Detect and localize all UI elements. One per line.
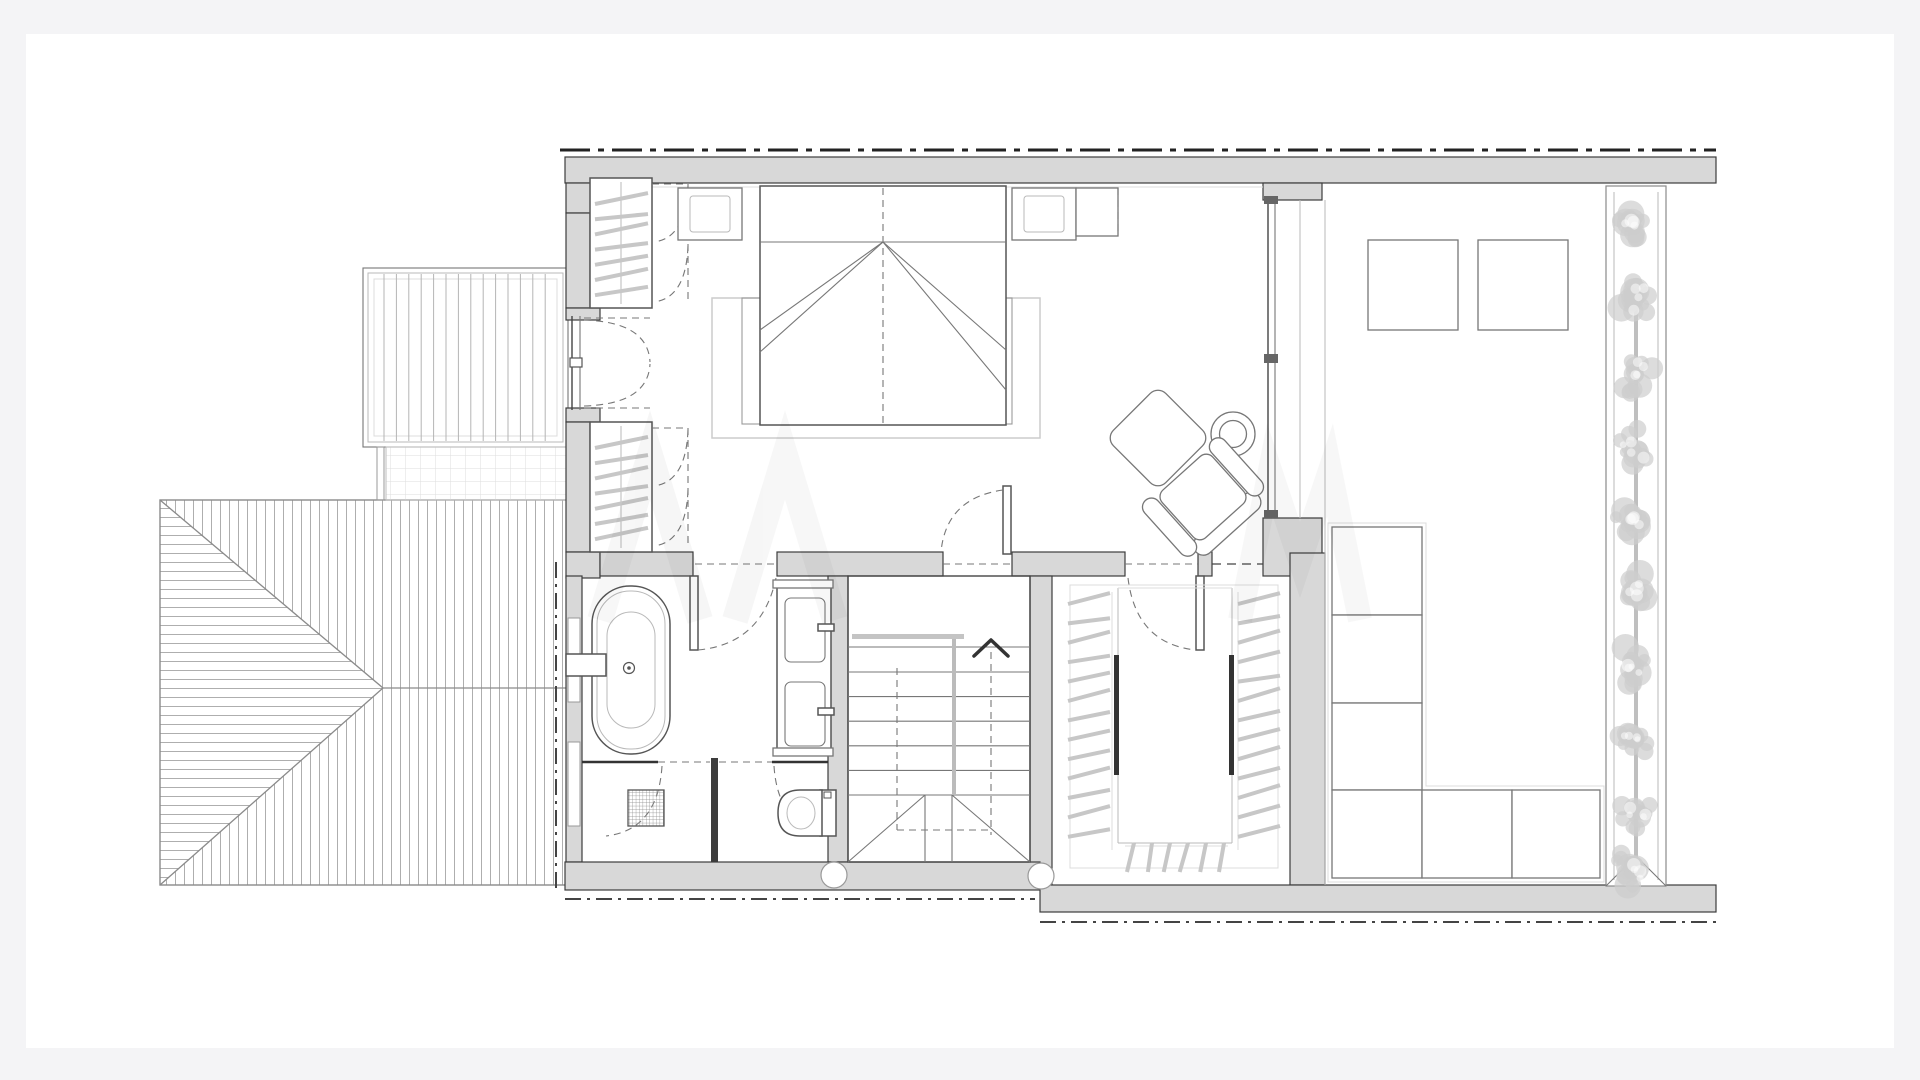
wardrobe-rod-left [1114,655,1119,775]
slider-mullion-top [1264,196,1278,204]
clothes-hanger [1238,747,1280,759]
french-balcony-door [570,316,650,410]
walk-in-closet [1068,585,1280,872]
bath-window-2 [568,742,580,826]
tap-1 [818,624,834,631]
clothes-hanger [1068,690,1110,701]
column-circle-left [821,862,847,888]
nightstand-right [1012,188,1076,240]
screenshot-root: { "document": { "kind": "architectural-f… [0,0,1920,1080]
handrail-start [852,634,964,639]
clothes-hanger [1068,806,1110,817]
winder-treads [848,795,1030,862]
sofa-module-4 [1332,790,1422,878]
clothes-hanger [1238,806,1280,818]
clothes-hanger [1068,593,1110,604]
vanity-bottom-lip [773,748,833,756]
terrace-table-1 [1368,240,1458,330]
clothes-hanger [1238,729,1280,740]
sofa-module-2 [1332,615,1422,703]
stair-hall [821,576,1054,889]
stair-treads [848,672,1030,795]
closet-door-swing [1128,578,1196,650]
clothes-hanger [1238,652,1280,663]
bed-outline [760,186,1006,425]
bathroom [566,580,836,862]
clothes-hanger [1238,711,1280,721]
closet-hangers [1068,592,1280,872]
tap-2 [818,708,834,715]
wall-southwest-corner [566,552,600,578]
clothes-hanger [1068,829,1110,837]
pergola-slats [384,274,545,441]
hipped-roof [160,500,568,885]
pergola-inner-frame [374,279,557,436]
wall-corridor-seg3 [1012,552,1125,576]
column-circle-right [1028,863,1054,889]
low-cabinet [1076,188,1118,236]
louvered-pergola-deck [363,268,568,500]
wall-north [565,157,1716,183]
toilet [778,790,836,836]
stairwell-outline [848,576,1030,862]
modular-corner-sofa [1328,523,1604,882]
clothes-hanger [1068,712,1110,720]
stair-hall-door-leaf [1003,486,1011,554]
closet-door-leaf [1196,576,1204,650]
tiled-landing [386,447,568,500]
terrace-table-2 [1478,240,1568,330]
clothes-hanger [1238,785,1280,798]
nightstand-left [678,188,742,240]
slider-mullion-mid [1264,354,1278,363]
clothes-hanger [1068,632,1110,643]
pergola-mid-frame [368,273,563,442]
stair-hall-door-swing [941,490,1003,552]
stair-center-railing [952,639,956,795]
clothes-hanger [1068,790,1110,798]
pergola-outer-frame [363,268,568,447]
clothes-hanger [1068,768,1110,779]
clothes-hanger [1068,731,1110,740]
wall-corridor-seg2 [777,552,943,576]
clothes-hanger [1238,688,1280,701]
clothes-hanger [1068,750,1110,759]
pergola-post [377,447,384,500]
wall-faucet [566,654,606,676]
wall-behind-wardrobe-top [566,213,590,308]
wall-pier-below-window [566,408,600,422]
clothes-hanger [1068,618,1110,623]
wall-south-bath-stairs [565,862,1040,890]
wall-closet-east [1290,553,1325,885]
roof-terrace [1325,186,1666,899]
wall-south-closet-terrace [1040,885,1716,912]
wardrobe-rod-right [1229,655,1234,775]
clothes-hanger [1068,673,1110,682]
sofa-module-6 [1512,790,1600,878]
door-mullion [570,358,582,367]
floor-plan-svg [0,0,1920,1080]
sofa-module-3 [1332,703,1422,790]
double-bed [760,186,1006,425]
clothes-hanger [1238,768,1280,779]
shower-wc-divider [711,758,718,862]
clothes-hanger [1238,631,1280,643]
clothes-hanger [1238,826,1280,837]
floor-drain [628,790,664,826]
sofa-module-5 [1422,790,1512,878]
wall-behind-wardrobe-bottom [566,422,590,552]
planter-hedge [1606,186,1666,899]
wall-stair-closet-divider [1030,576,1052,885]
closet-shelf-boundary [1070,585,1278,868]
clothes-hanger [1238,676,1280,682]
clothes-hanger [1068,656,1110,663]
wall-pier-above-window [566,308,600,320]
